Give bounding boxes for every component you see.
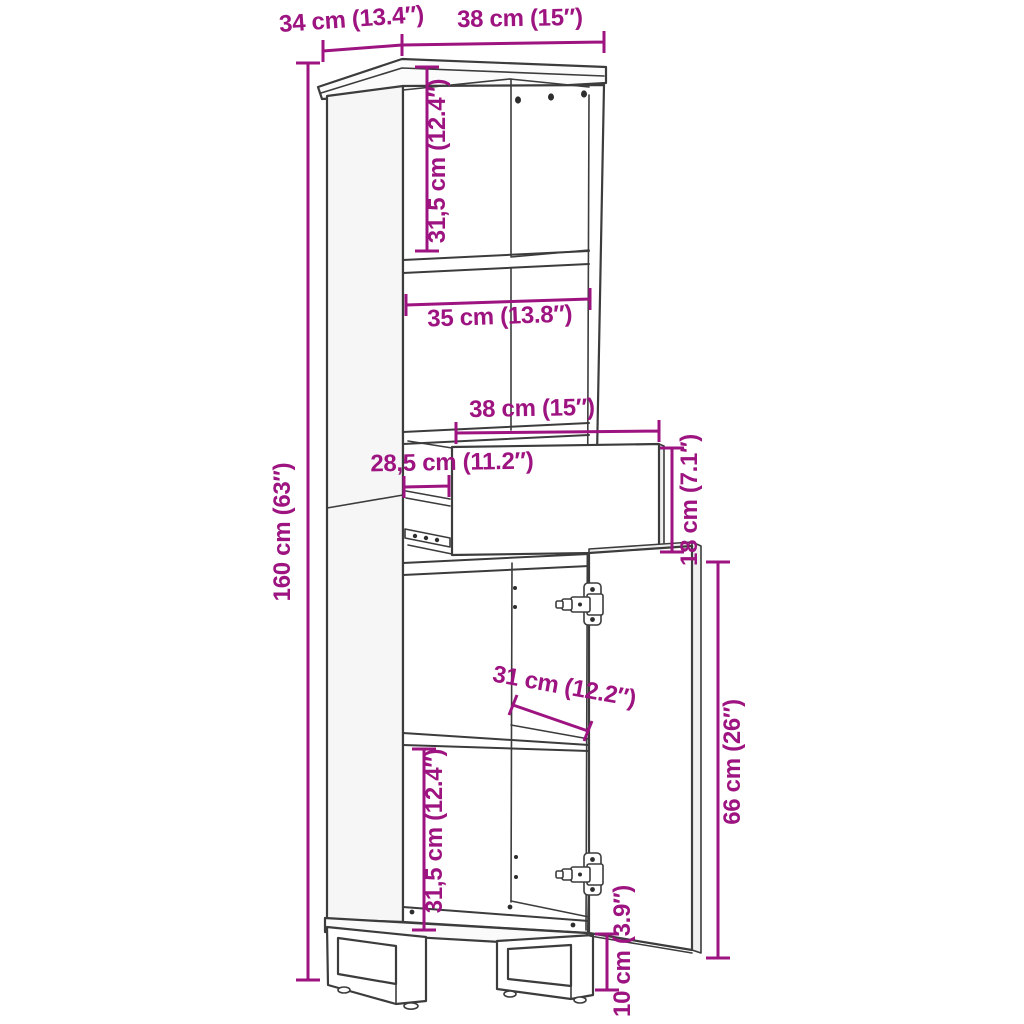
dim-label-top-depth: 34 cm (13.4″) bbox=[278, 1, 425, 38]
dim-label-drawer-depth: 28,5 cm (11.2″) bbox=[370, 448, 534, 478]
dim-label-total-height: 160 cm (63″) bbox=[269, 463, 296, 602]
dim-door-height: 66 cm (26″) bbox=[706, 562, 746, 958]
left-leg bbox=[327, 927, 426, 1009]
dim-label-top-width: 38 cm (15″) bbox=[457, 4, 583, 33]
cabinet-dimension-diagram: 34 cm (13.4″) 38 cm (15″) 160 cm (63″) 3… bbox=[0, 0, 1024, 1024]
diagram-canvas: 34 cm (13.4″) 38 cm (15″) 160 cm (63″) 3… bbox=[0, 0, 1024, 1024]
dim-label-leg-height: 10 cm (3.9″) bbox=[609, 885, 636, 1017]
dim-top-depth: 34 cm (13.4″) bbox=[278, 1, 425, 62]
dim-label-upper-section-height: 31,5 cm (12.4″) bbox=[424, 79, 451, 243]
cabinet-door bbox=[589, 542, 701, 953]
dim-label-lower-section-height: 31,5 cm (12.4″) bbox=[421, 749, 448, 913]
dim-label-door-height: 66 cm (26″) bbox=[719, 699, 746, 825]
right-leg bbox=[497, 935, 593, 1003]
dim-total-height: 160 cm (63″) bbox=[269, 63, 320, 980]
cabinet-left-side-panel bbox=[327, 86, 403, 922]
door-panel bbox=[589, 546, 692, 950]
dim-label-drawer-height: 18 cm (7.1″) bbox=[676, 434, 703, 566]
dim-top-width: 38 cm (15″) bbox=[402, 4, 604, 53]
dim-label-middle-shelf-width: 35 cm (13.8″) bbox=[427, 300, 573, 332]
dim-label-drawer-width: 38 cm (15″) bbox=[469, 394, 595, 423]
